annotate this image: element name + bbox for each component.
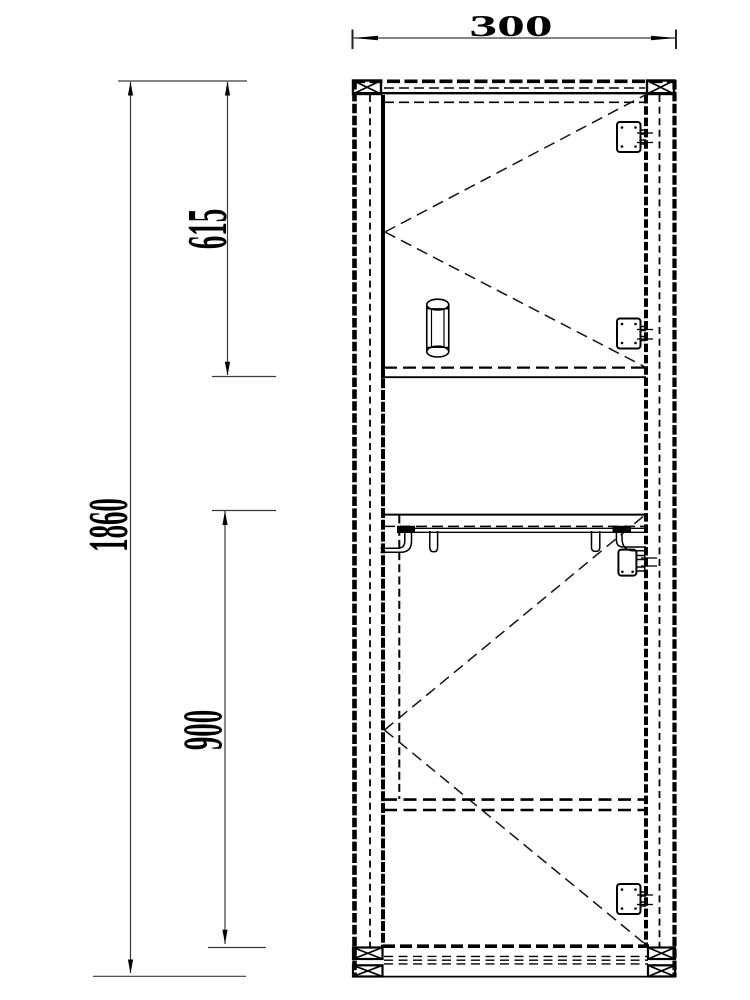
svg-text:615: 615 bbox=[176, 209, 238, 249]
svg-text:300: 300 bbox=[469, 9, 552, 43]
svg-text:1860: 1860 bbox=[77, 498, 139, 552]
svg-text:900: 900 bbox=[172, 710, 234, 750]
